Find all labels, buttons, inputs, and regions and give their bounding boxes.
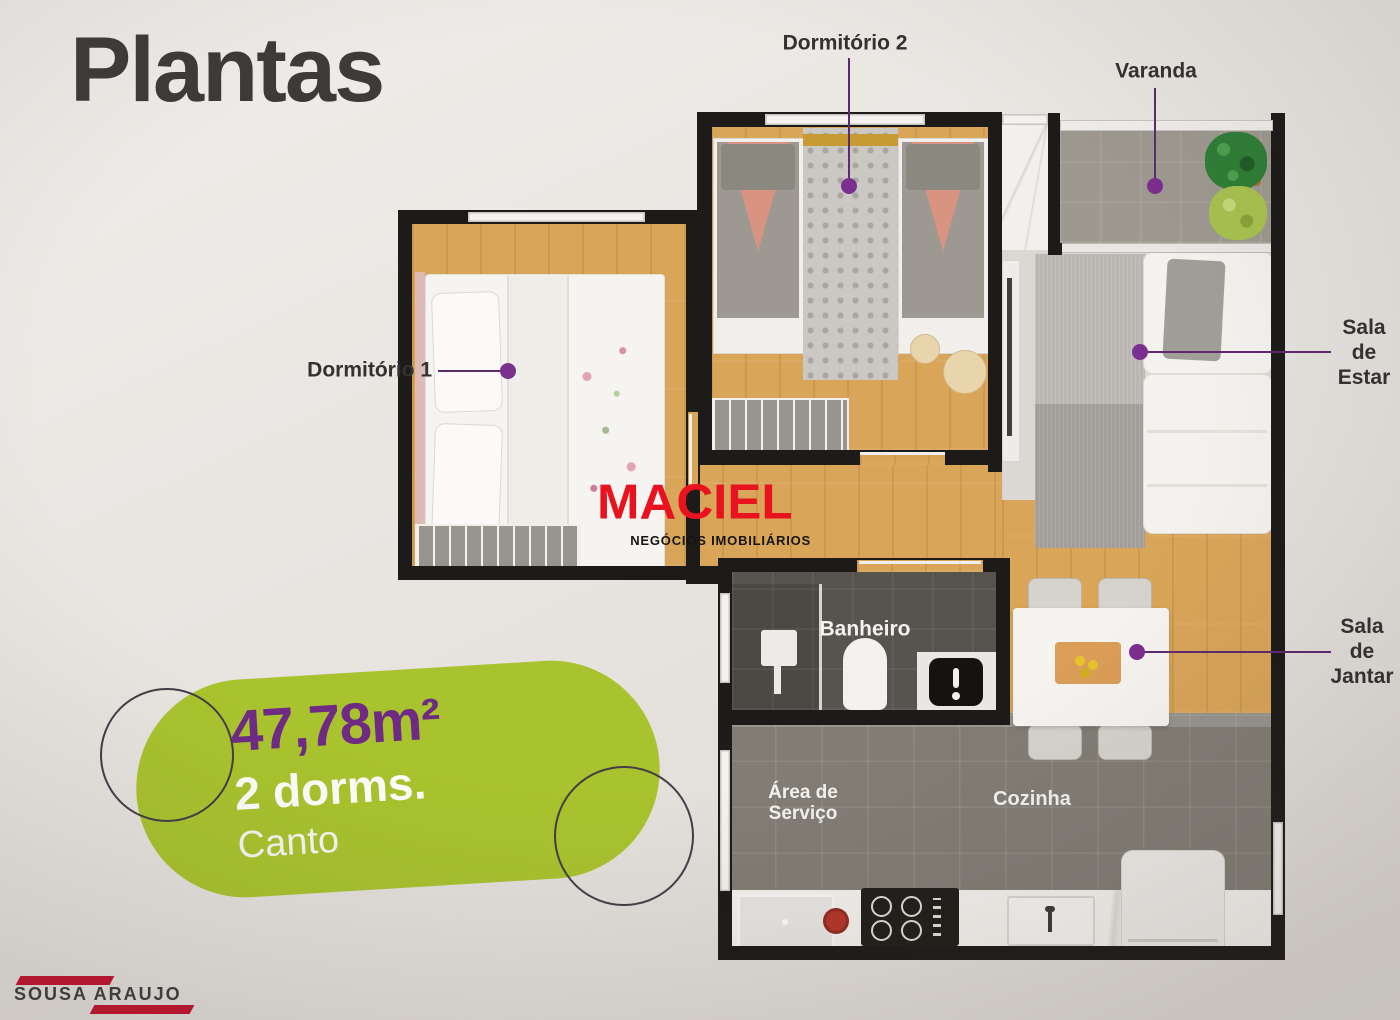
flower-centerpiece xyxy=(1075,656,1085,666)
door-leaf xyxy=(860,452,945,455)
callout-sala-estar: Sala de Estar xyxy=(1338,316,1391,390)
brand-watermark: MACIEL NEGÓCIOS IMOBILIÁRIOS xyxy=(597,472,811,548)
cooktop xyxy=(861,888,959,946)
vanity-sink xyxy=(929,658,983,706)
living-rug xyxy=(1035,404,1145,548)
single-bed-pillow xyxy=(721,144,795,190)
wall-segment xyxy=(1048,113,1060,250)
window xyxy=(765,114,925,125)
tank-drain xyxy=(782,919,788,925)
leader-line xyxy=(1140,651,1331,653)
kitchen-sink xyxy=(1007,896,1095,946)
potted-plant xyxy=(1209,186,1267,240)
unit-area: 47,78m² xyxy=(229,685,442,765)
leader-line xyxy=(1143,351,1331,353)
callout-dot xyxy=(1132,344,1148,360)
callout-dot xyxy=(1147,178,1163,194)
single-bed-pillow xyxy=(906,144,980,190)
wall-segment xyxy=(718,946,1285,960)
window xyxy=(720,593,730,683)
burner xyxy=(871,920,892,941)
unit-layout: Canto xyxy=(237,812,448,868)
faucet-icon xyxy=(952,692,960,700)
dining-chair xyxy=(1098,724,1152,760)
footer-accent-bar xyxy=(90,1005,195,1014)
footer-brand: SOUSA ARAUJO xyxy=(14,984,182,1005)
potted-plant xyxy=(1205,132,1267,190)
unit-info-text: 47,78m² 2 dorms. Canto xyxy=(229,685,448,867)
door-leaf xyxy=(859,561,981,564)
wall-segment xyxy=(398,210,412,580)
decor-circle xyxy=(554,766,694,906)
living-rug xyxy=(1035,254,1145,404)
laundry-tank xyxy=(737,894,835,950)
decor-circle xyxy=(100,688,234,822)
window xyxy=(1273,822,1283,915)
shower-glass xyxy=(819,584,822,710)
pillow xyxy=(431,291,503,413)
door-opening xyxy=(857,560,983,572)
sofa xyxy=(1143,374,1273,534)
pouf xyxy=(943,350,987,394)
window-bench xyxy=(803,134,898,146)
leader-line xyxy=(848,58,850,186)
shower-arm xyxy=(774,666,781,694)
callout-dormitorio1: Dormitório 1 xyxy=(307,359,432,384)
sofa-throw-blanket xyxy=(1162,259,1225,362)
callout-dormitorio2: Dormitório 2 xyxy=(783,32,908,57)
wall-segment xyxy=(398,566,700,580)
wall-segment xyxy=(996,558,1010,725)
decor-bowl xyxy=(823,908,849,934)
tv xyxy=(1007,278,1012,436)
fridge xyxy=(1121,850,1225,950)
sofa-cushion-seam xyxy=(1147,430,1267,433)
leader-line xyxy=(438,370,508,372)
knob-panel xyxy=(933,898,941,936)
faucet-icon xyxy=(953,668,959,688)
door-opening xyxy=(860,452,945,465)
room-label-area-servico: Área de Serviço xyxy=(768,783,838,825)
page-title: Plantas xyxy=(70,18,383,123)
callout-dot xyxy=(1129,644,1145,660)
wardrobe xyxy=(415,524,581,572)
window xyxy=(468,212,645,222)
callout-varanda: Varanda xyxy=(1115,60,1197,85)
single-bed-foot xyxy=(717,318,799,348)
leader-line xyxy=(1154,88,1156,186)
balcony-glass-door xyxy=(1062,243,1271,253)
bedroom-rug xyxy=(803,128,898,380)
room-label-cozinha: Cozinha xyxy=(993,788,1071,810)
brand-tagline: NEGÓCIOS IMOBILIÁRIOS xyxy=(597,533,811,548)
pouf xyxy=(910,334,940,364)
burner xyxy=(871,896,892,917)
wall-segment xyxy=(697,450,1002,465)
wall-segment xyxy=(1048,243,1062,255)
wall-segment xyxy=(727,710,1010,725)
room-label-banheiro: Banheiro xyxy=(819,617,910,640)
balcony-railing xyxy=(1060,120,1273,131)
shower-head xyxy=(761,630,797,666)
unit-bedrooms: 2 dorms. xyxy=(233,754,445,821)
callout-dot xyxy=(841,178,857,194)
sofa-cushion-seam xyxy=(1147,484,1267,487)
burner xyxy=(901,896,922,917)
entry-floor xyxy=(1002,125,1048,250)
window xyxy=(720,750,730,891)
callout-dot xyxy=(500,363,516,379)
wall-segment xyxy=(988,112,1002,472)
toilet xyxy=(843,638,887,710)
table-runner xyxy=(1055,642,1121,684)
dining-chair xyxy=(1028,724,1082,760)
faucet-icon xyxy=(1045,906,1055,912)
entry-door xyxy=(1002,114,1048,125)
callout-sala-jantar: Sala de Jantar xyxy=(1330,615,1393,689)
wardrobe xyxy=(711,398,849,456)
fridge-handle xyxy=(1128,939,1218,942)
burner xyxy=(901,920,922,941)
brand-logo: MACIEL xyxy=(597,473,811,530)
faucet-icon xyxy=(1048,910,1052,932)
wall-segment xyxy=(686,566,732,584)
